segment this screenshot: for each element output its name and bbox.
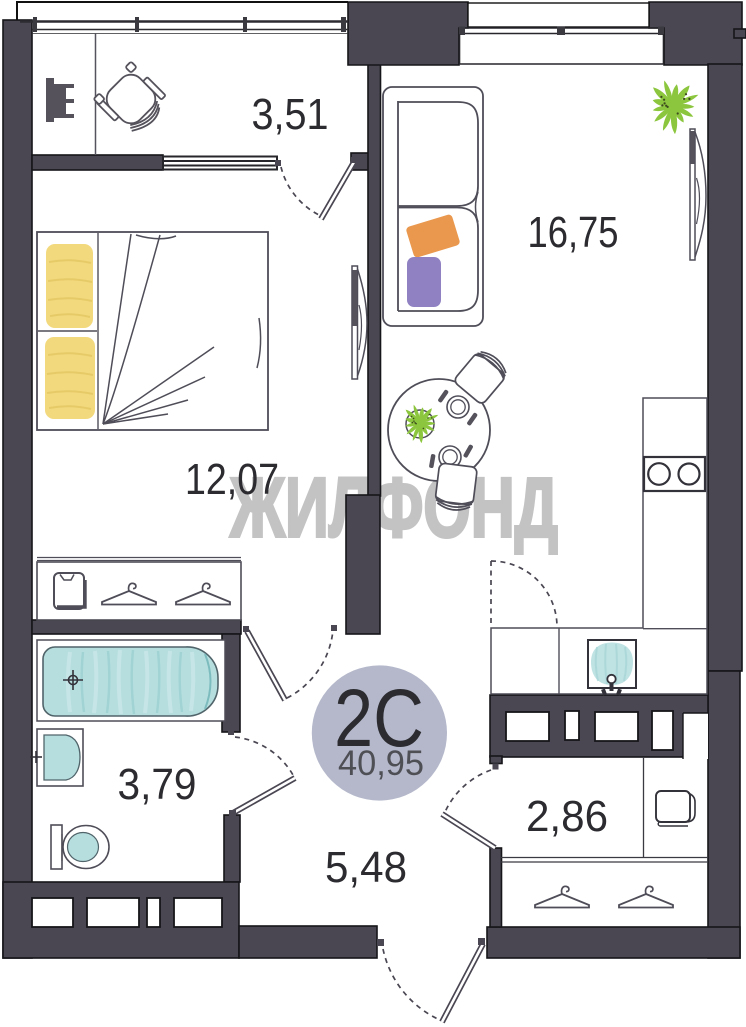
svg-text:2,86: 2,86: [526, 792, 608, 841]
svg-text:3,79: 3,79: [118, 760, 197, 809]
svg-text:16,75: 16,75: [528, 208, 619, 257]
svg-text:40,95: 40,95: [338, 744, 424, 783]
svg-text:3,51: 3,51: [252, 90, 329, 139]
svg-text:5,48: 5,48: [325, 843, 407, 892]
svg-text:12,07: 12,07: [185, 455, 279, 504]
